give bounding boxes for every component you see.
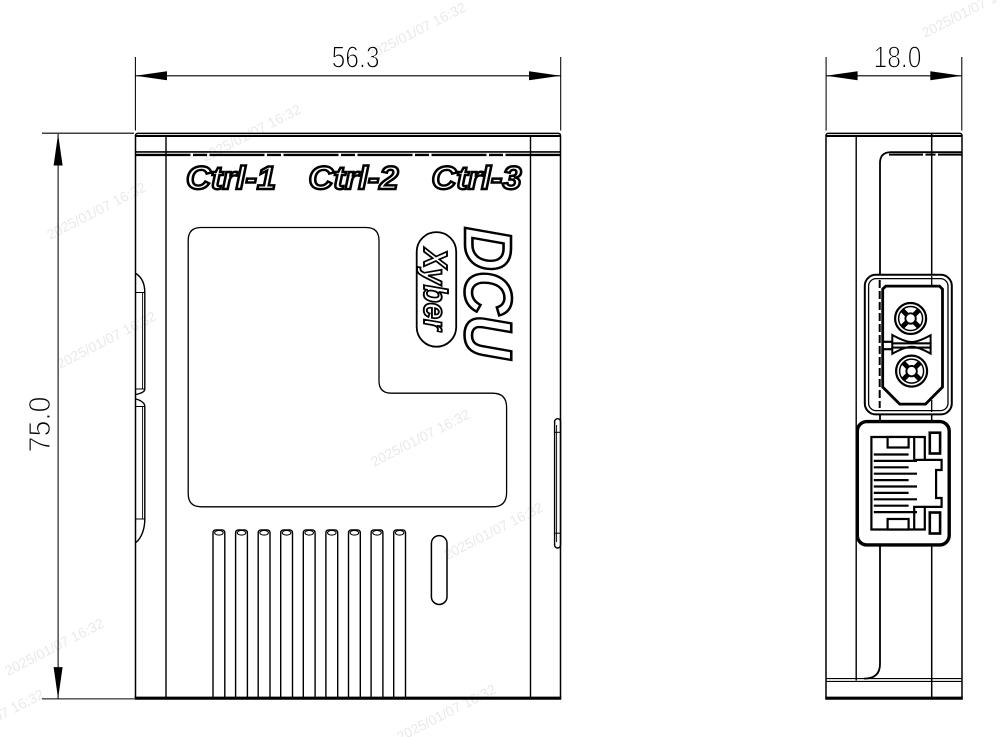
svg-text:DCU: DCU	[450, 227, 525, 360]
svg-text:Xyber: Xyber	[417, 247, 454, 333]
svg-text:75.0: 75.0	[22, 397, 57, 453]
svg-text:Ctrl-1: Ctrl-1	[186, 160, 276, 196]
svg-text:56.3: 56.3	[332, 40, 380, 75]
svg-text:Ctrl-2: Ctrl-2	[309, 160, 399, 196]
svg-text:Ctrl-3: Ctrl-3	[432, 160, 522, 196]
svg-text:18.0: 18.0	[874, 40, 922, 75]
